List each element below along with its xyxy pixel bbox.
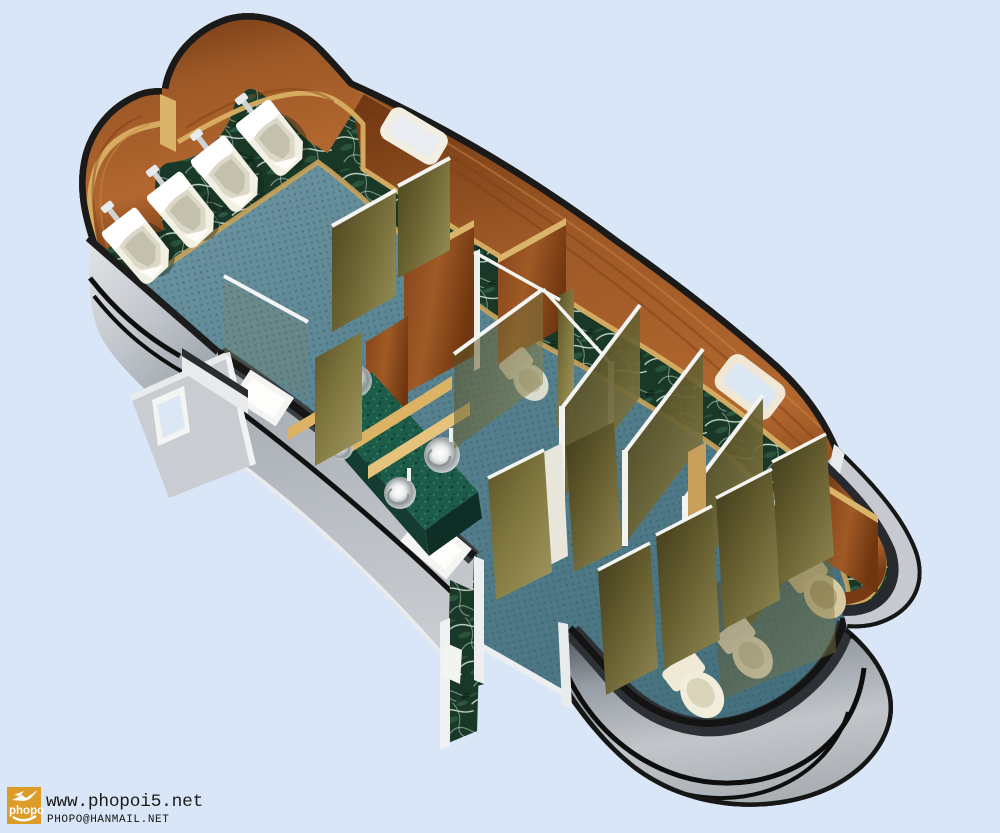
svg-text:phopo: phopo [9, 805, 44, 817]
svg-text:www.phopoi5.net: www.phopoi5.net [46, 792, 203, 812]
svg-text:PHOPO@HANMAIL.NET: PHOPO@HANMAIL.NET [47, 814, 169, 826]
